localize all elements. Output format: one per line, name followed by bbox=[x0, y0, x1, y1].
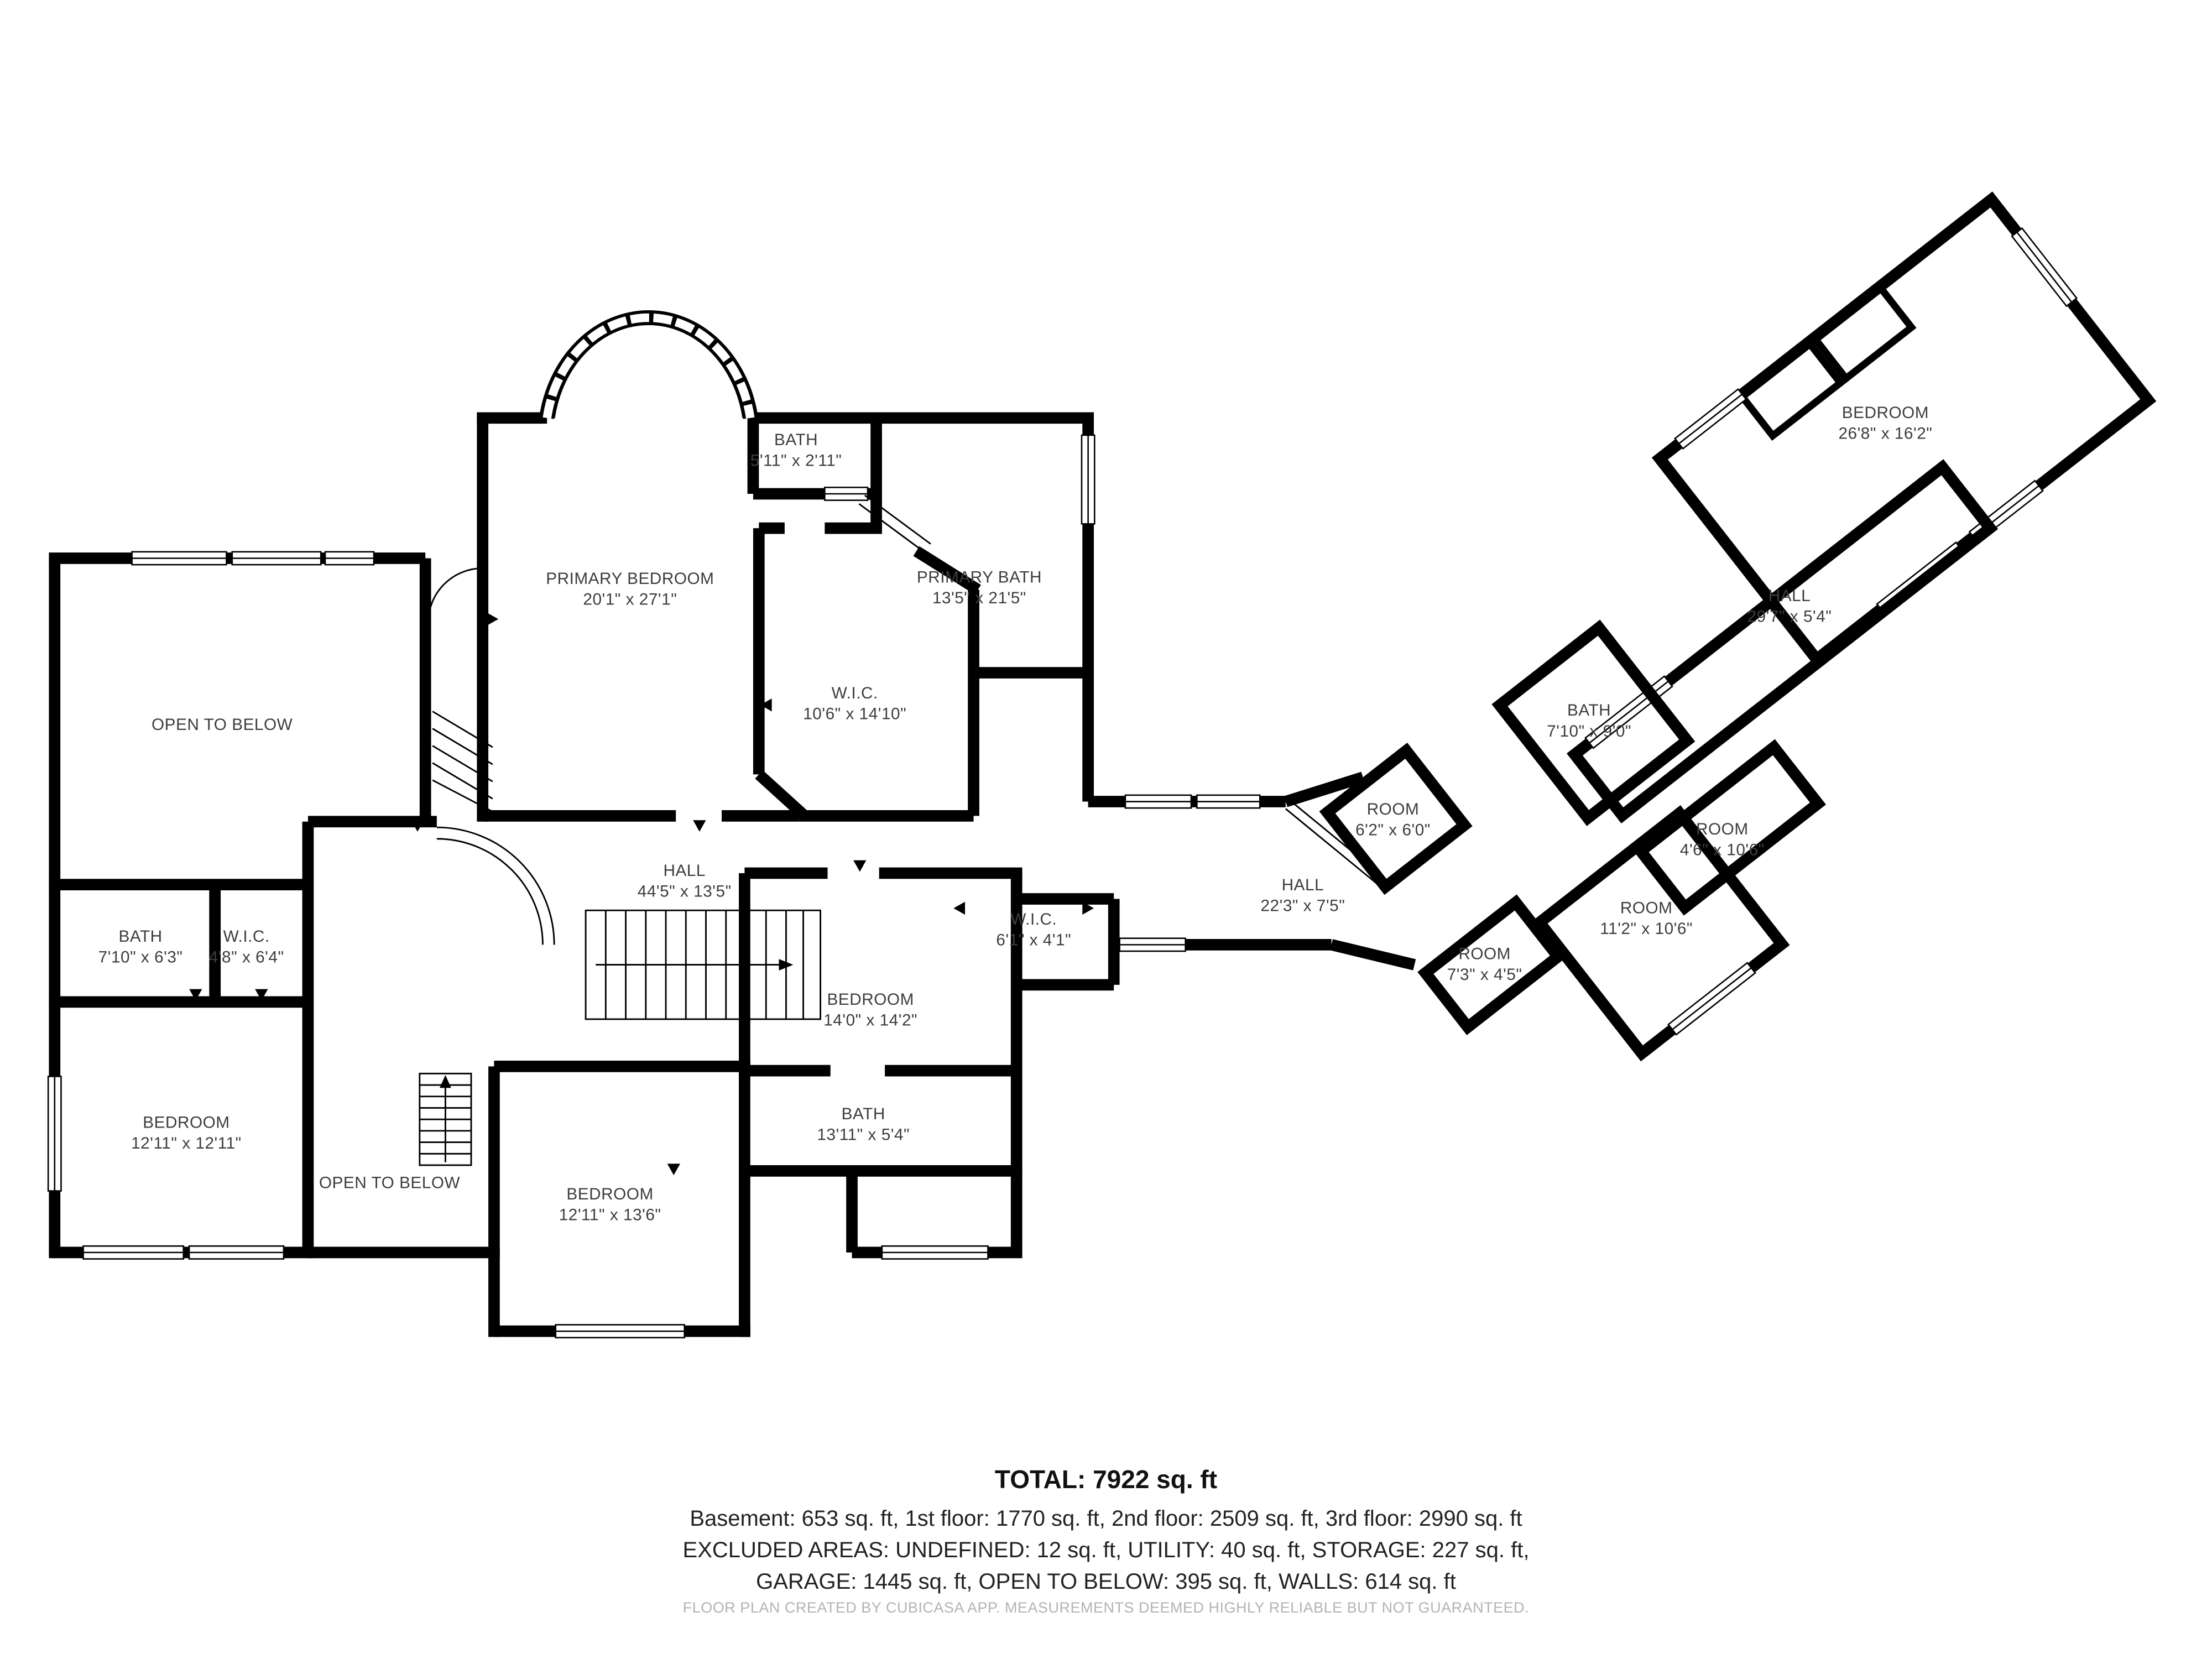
room-label-bath-left: BATH7'10" x 6'3" bbox=[98, 927, 183, 967]
bay-window-arch bbox=[540, 311, 757, 418]
window bbox=[1675, 389, 1746, 449]
floor-areas-text: Basement: 653 sq. ft, 1st floor: 1770 sq… bbox=[0, 1503, 2212, 1535]
room-label-wic-small: W.I.C.6'1" x 4'1" bbox=[996, 910, 1071, 950]
room-label-bedroom-right: BEDROOM26'8" x 16'2" bbox=[1838, 404, 1932, 443]
room-label-room-small-4: ROOM7'3" x 4'5" bbox=[1447, 945, 1522, 984]
staircase-main bbox=[586, 910, 821, 1019]
room-label-open-to-below-upper: OPEN TO BELOW bbox=[152, 716, 293, 734]
excluded-areas-text-1: EXCLUDED AREAS: UNDEFINED: 12 sq. ft, UT… bbox=[0, 1535, 2212, 1566]
room-label-bedroom-bottom: BEDROOM12'11" x 13'6" bbox=[559, 1185, 661, 1224]
room-label-open-to-below-lower: OPEN TO BELOW bbox=[319, 1173, 460, 1192]
stair-railing-curve bbox=[437, 827, 554, 945]
room-label-hall-mid: HALL22'3" x 7'5" bbox=[1260, 876, 1345, 915]
area-summary: TOTAL: 7922 sq. ft Basement: 653 sq. ft,… bbox=[0, 1464, 2212, 1598]
floorplan-drawing: BATH5'11" x 2'11"PRIMARY BEDROOM20'1" x … bbox=[0, 0, 2212, 1659]
room-label-primary-bath: PRIMARY BATH13'5" x 21'5" bbox=[917, 568, 1042, 607]
room-label-wic-primary: W.I.C.10'6" x 14'10" bbox=[803, 684, 906, 723]
room-label-bedroom-mid: BEDROOM14'0" x 14'2" bbox=[823, 990, 917, 1030]
room-label-hall-main: HALL44'5" x 13'5" bbox=[638, 862, 732, 901]
room-label-bath-upper: BATH5'11" x 2'11" bbox=[750, 431, 842, 470]
window bbox=[2012, 228, 2077, 306]
room-label-primary-bedroom: PRIMARY BEDROOM20'1" x 27'1" bbox=[546, 570, 714, 609]
door-swings bbox=[428, 495, 1387, 888]
room-label-room-small-1: ROOM6'2" x 6'0" bbox=[1355, 800, 1431, 839]
window bbox=[1668, 963, 1755, 1035]
room-label-bath-mid: BATH13'11" x 5'4" bbox=[817, 1105, 910, 1144]
disclaimer-text: FLOOR PLAN CREATED BY CUBICASA APP. MEAS… bbox=[0, 1599, 2212, 1616]
staircase-small bbox=[420, 1073, 471, 1165]
walls-right-wing bbox=[1327, 190, 2157, 1058]
floorplan-page: BATH5'11" x 2'11"PRIMARY BEDROOM20'1" x … bbox=[0, 0, 2212, 1659]
excluded-areas-text-2: GARAGE: 1445 sq. ft, OPEN TO BELOW: 395 … bbox=[0, 1566, 2212, 1598]
room-label-bedroom-left: BEDROOM12'11" x 12'11" bbox=[131, 1114, 242, 1153]
room-small-1-outline bbox=[1327, 751, 1464, 887]
total-area-text: TOTAL: 7922 sq. ft bbox=[0, 1464, 2212, 1494]
